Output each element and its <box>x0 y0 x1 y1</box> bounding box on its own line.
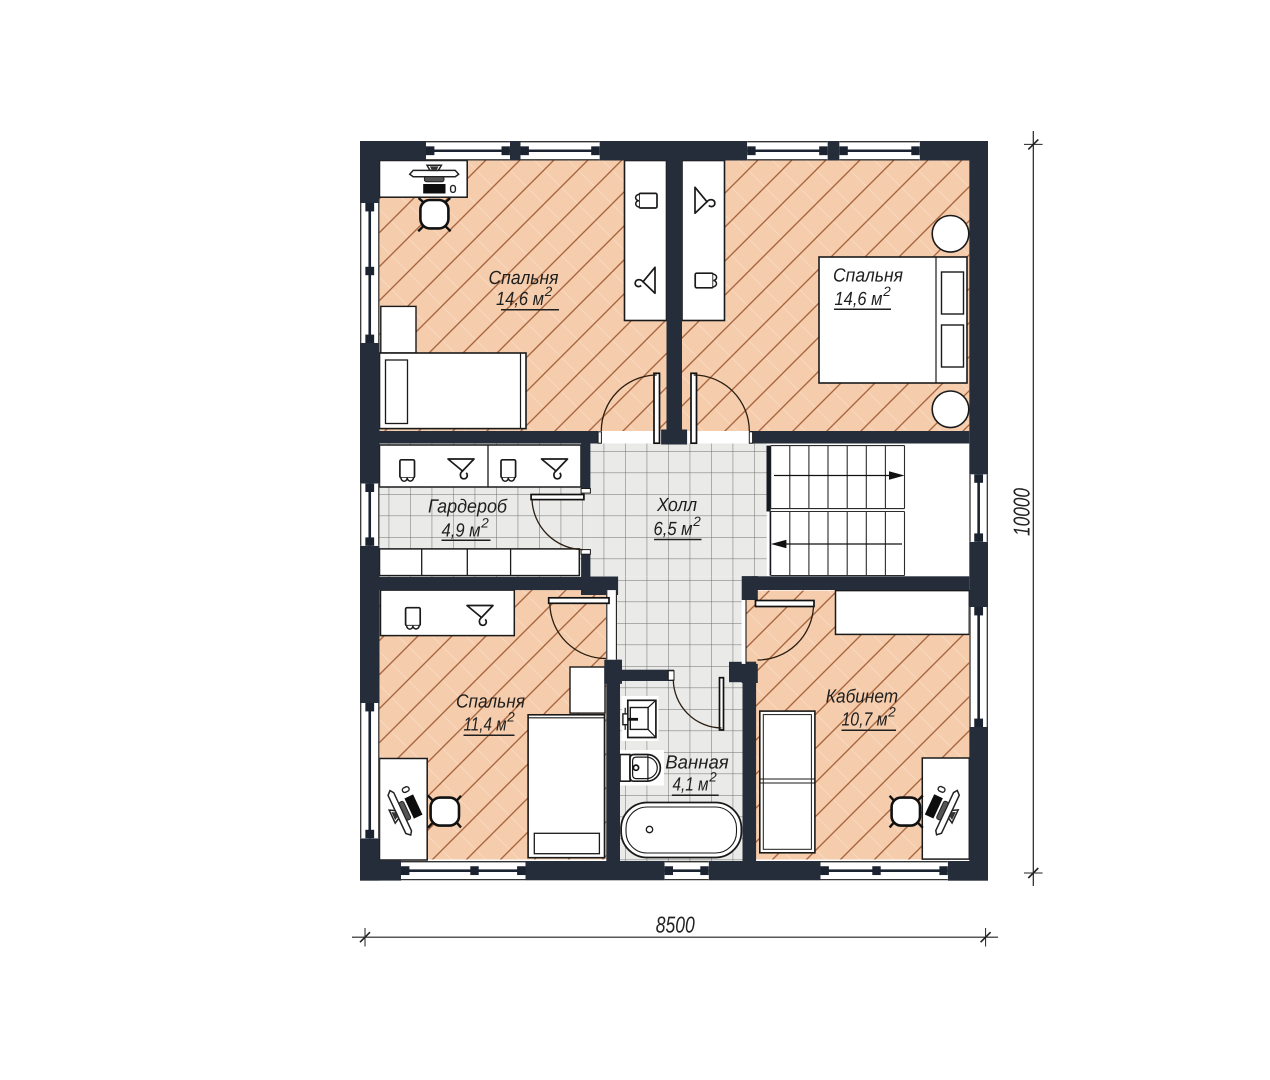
svg-text:6,5 м: 6,5 м <box>654 519 693 540</box>
svg-text:Гардероб: Гардероб <box>428 497 508 518</box>
svg-text:10,7 м: 10,7 м <box>842 710 888 731</box>
svg-text:14,6 м: 14,6 м <box>835 289 883 310</box>
svg-text:2: 2 <box>882 284 891 299</box>
svg-text:Ванная: Ванная <box>665 753 729 774</box>
svg-text:10000: 10000 <box>1009 488 1035 536</box>
svg-text:2: 2 <box>506 710 515 725</box>
svg-text:11,4 м: 11,4 м <box>464 715 507 736</box>
svg-text:2: 2 <box>480 515 489 530</box>
svg-text:Спальня: Спальня <box>833 266 903 287</box>
svg-text:14,6 м: 14,6 м <box>496 289 544 310</box>
svg-text:8500: 8500 <box>656 912 695 938</box>
svg-text:2: 2 <box>544 284 553 299</box>
svg-text:2: 2 <box>692 514 701 529</box>
svg-text:2: 2 <box>887 705 896 720</box>
svg-text:4,1 м: 4,1 м <box>673 775 709 796</box>
svg-text:4,9 м: 4,9 м <box>442 520 481 541</box>
svg-text:Холл: Холл <box>656 495 697 516</box>
svg-text:2: 2 <box>708 770 717 785</box>
